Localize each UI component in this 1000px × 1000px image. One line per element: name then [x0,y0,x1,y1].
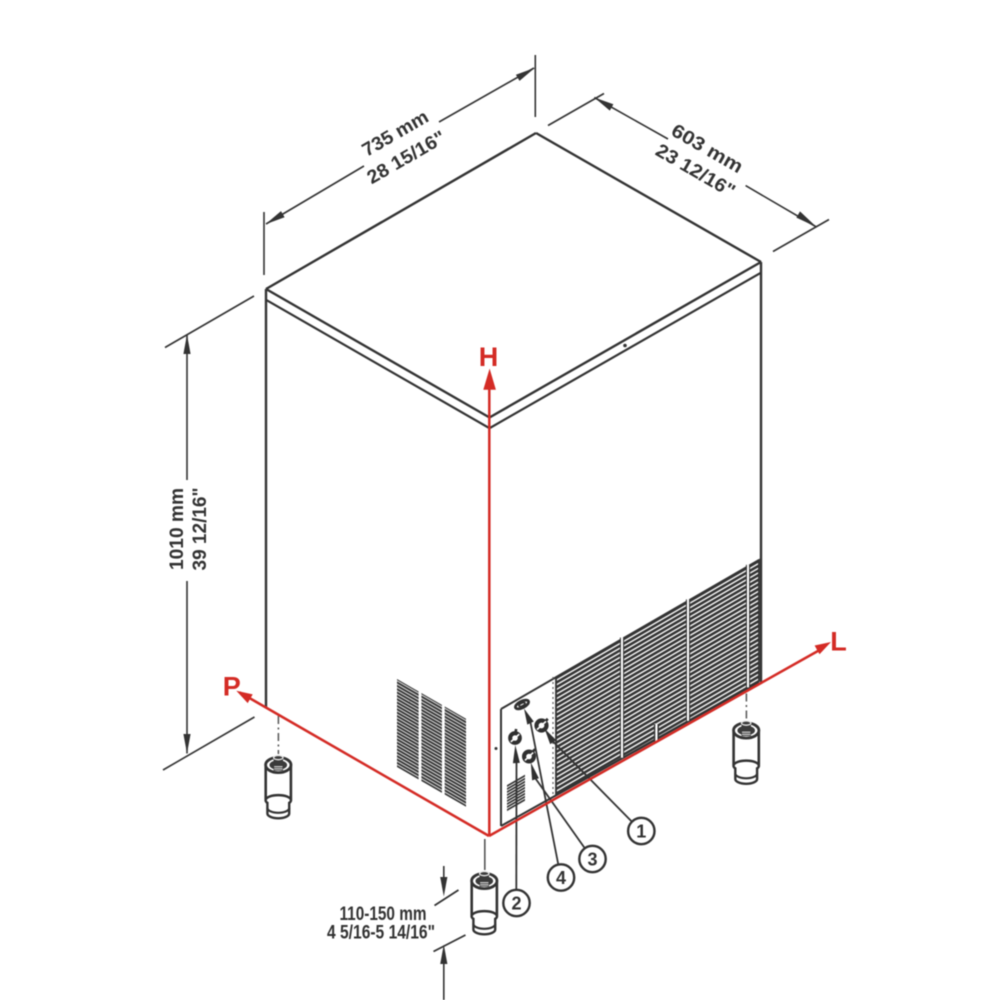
svg-text:H: H [479,342,499,372]
svg-text:2: 2 [511,893,521,913]
svg-text:P: P [223,671,241,701]
svg-text:L: L [830,626,847,656]
svg-text:3: 3 [587,849,597,869]
svg-text:4: 4 [556,868,566,888]
svg-text:1010 mm: 1010 mm [167,488,188,570]
svg-text:1: 1 [636,821,646,841]
svg-text:39 12/16": 39 12/16" [190,488,211,571]
svg-text:4 5/16-5 14/16": 4 5/16-5 14/16" [327,923,435,944]
